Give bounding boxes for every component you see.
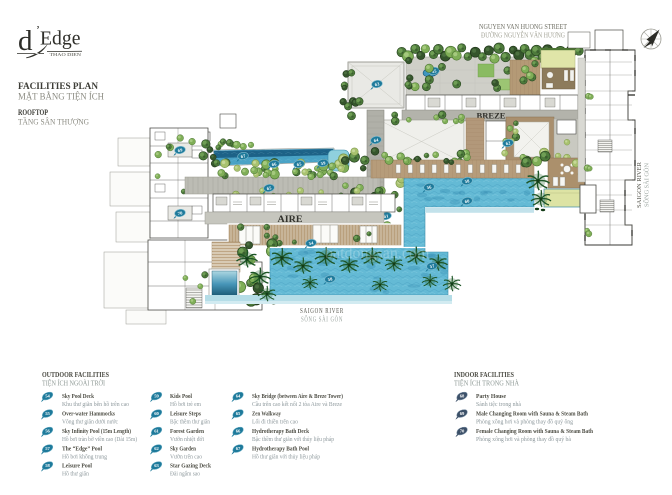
svg-text:Phòng xông hơi và phòng thay đ: Phòng xông hơi và phòng thay đồ quý bà xyxy=(476,436,571,443)
svg-text:Leisure Steps: Leisure Steps xyxy=(170,411,202,418)
svg-text:Sky Infinity Pool (15m Length): Sky Infinity Pool (15m Length) xyxy=(62,428,131,435)
svg-text:61: 61 xyxy=(154,429,159,434)
svg-text:Party House: Party House xyxy=(476,393,506,400)
svg-text:ĐƯỜNG NGUYỄN VĂN HƯƠNG: ĐƯỜNG NGUYỄN VĂN HƯƠNG xyxy=(481,32,565,40)
svg-text:67: 67 xyxy=(236,446,241,451)
svg-text:INDOOR FACILITIES: INDOOR FACILITIES xyxy=(454,370,514,379)
svg-text:OUTDOOR FACILITIES: OUTDOOR FACILITIES xyxy=(42,370,109,379)
svg-text:TIỆN ÍCH TRONG NHÀ: TIỆN ÍCH TRONG NHÀ xyxy=(454,378,520,388)
svg-text:56: 56 xyxy=(45,429,50,434)
svg-text:Kids Pool: Kids Pool xyxy=(170,393,192,400)
svg-text:Hồ thư giãn: Hồ thư giãn xyxy=(62,471,89,478)
svg-text:d: d xyxy=(18,25,33,57)
svg-text:64: 64 xyxy=(236,394,241,399)
svg-text:Vườn trên cao: Vườn trên cao xyxy=(170,455,202,461)
svg-text:Sky Garden: Sky Garden xyxy=(170,446,196,453)
svg-text:SÔNG SÀI GÒN: SÔNG SÀI GÒN xyxy=(301,316,343,324)
svg-text:Male Changing Room with Sauna: Male Changing Room with Sauna & Steam Ba… xyxy=(476,411,588,418)
svg-text:TIỆN ÍCH NGOÀI TRỜI: TIỆN ÍCH NGOÀI TRỜI xyxy=(42,378,106,388)
svg-text:Hồ bơi tràn bờ viền cao (Dài 1: Hồ bơi tràn bờ viền cao (Dài 15m) xyxy=(62,436,137,443)
svg-text:58: 58 xyxy=(45,463,50,468)
svg-text:63: 63 xyxy=(154,463,159,468)
svg-text:55: 55 xyxy=(45,411,50,416)
svg-text:Lối đi thiền trên cao: Lối đi thiền trên cao xyxy=(252,419,298,426)
svg-text:54: 54 xyxy=(45,394,50,399)
svg-text:SAIGON RIVER: SAIGON RIVER xyxy=(637,162,643,208)
svg-text:Over-water Hammocks: Over-water Hammocks xyxy=(62,411,116,418)
svg-text:Zen Walkway: Zen Walkway xyxy=(252,411,282,418)
svg-text:Bậc thềm thư giãn với thủy liệ: Bậc thềm thư giãn với thủy liệu pháp xyxy=(252,436,334,443)
svg-text:Đài ngắm sao: Đài ngắm sao xyxy=(170,471,200,478)
svg-text:Hồ thư giãn với thủy liệu pháp: Hồ thư giãn với thủy liệu pháp xyxy=(252,454,320,461)
svg-text:Star Gazing Deck: Star Gazing Deck xyxy=(170,463,211,470)
svg-text:Cầu trên cao kết nối 2 tòa Air: Cầu trên cao kết nối 2 tòa Aire và Breze xyxy=(252,401,342,408)
svg-text:batdongsan.com: batdongsan.com xyxy=(325,245,430,262)
svg-text:Vườn nhiệt đới: Vườn nhiệt đới xyxy=(170,437,204,443)
svg-text:69: 69 xyxy=(460,411,465,416)
svg-text:57: 57 xyxy=(45,446,50,451)
svg-text:66: 66 xyxy=(236,429,241,434)
svg-text:Bậc thềm thư giãn: Bậc thềm thư giãn xyxy=(170,419,210,426)
svg-text:ROOFTOP: ROOFTOP xyxy=(18,107,48,117)
svg-text:Khu thư giãn bên hồ trên cao: Khu thư giãn bên hồ trên cao xyxy=(62,401,129,408)
svg-text:65: 65 xyxy=(236,411,241,416)
svg-text:Forest Garden: Forest Garden xyxy=(170,428,204,435)
svg-text:Hydrotherapy Bath Deck: Hydrotherapy Bath Deck xyxy=(252,428,309,435)
svg-text:Sky Bridge (between Aire & Bre: Sky Bridge (between Aire & Breze Tower) xyxy=(252,393,343,400)
svg-text:Phòng xông hơi và phòng thay đ: Phòng xông hơi và phòng thay đồ quý ông xyxy=(476,419,573,426)
svg-text:70: 70 xyxy=(460,429,465,434)
svg-text:Sky Pool Deck: Sky Pool Deck xyxy=(62,393,94,400)
svg-text:Leisure Pool: Leisure Pool xyxy=(62,463,92,470)
svg-text:Sảnh tiệc trong nhà: Sảnh tiệc trong nhà xyxy=(476,402,521,408)
svg-text:Hồ bơi không trung: Hồ bơi không trung xyxy=(62,454,107,461)
svg-text:FACILITIES PLAN: FACILITIES PLAN xyxy=(18,81,98,92)
svg-text:THAO DIEN: THAO DIEN xyxy=(50,52,82,57)
svg-text:SÔNG SÀI GÒN: SÔNG SÀI GÒN xyxy=(643,162,651,207)
svg-text:62: 62 xyxy=(154,446,159,451)
svg-text:Hồ bơi trẻ em: Hồ bơi trẻ em xyxy=(170,401,201,408)
svg-text:MẶT BẰNG TIỆN ÍCH: MẶT BẰNG TIỆN ÍCH xyxy=(18,90,104,103)
svg-text:The “Edge” Pool: The “Edge” Pool xyxy=(62,446,102,453)
svg-text:TẦNG SÂN THƯỢNG: TẦNG SÂN THƯỢNG xyxy=(18,117,89,127)
svg-text:Hydrotherapy Bath Pool: Hydrotherapy Bath Pool xyxy=(252,446,309,453)
svg-text:SAIGON RIVER: SAIGON RIVER xyxy=(300,307,344,315)
svg-text:60: 60 xyxy=(154,411,159,416)
svg-text:59: 59 xyxy=(154,394,159,399)
svg-text:Võng thư giãn dưới nước: Võng thư giãn dưới nước xyxy=(62,420,118,426)
svg-text:Female Changing Room with Saun: Female Changing Room with Sauna & Steam … xyxy=(476,428,593,435)
svg-text:68: 68 xyxy=(460,394,465,399)
svg-text:NGUYEN VAN HUONG STREET: NGUYEN VAN HUONG STREET xyxy=(479,23,568,31)
